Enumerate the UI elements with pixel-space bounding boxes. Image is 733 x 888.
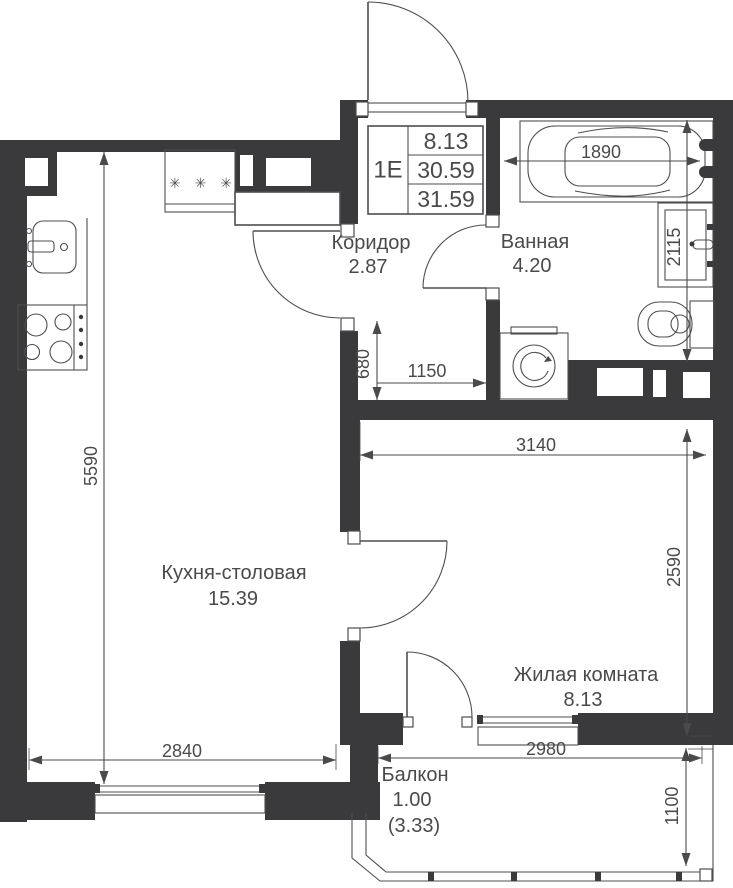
wall-hall-living-divider — [340, 400, 568, 420]
kitchen-door-swing-arc — [253, 231, 340, 318]
balcony-door — [407, 652, 472, 717]
toilet-cistern — [690, 301, 714, 348]
door-jamb — [348, 628, 360, 641]
flat-total-area: 31.59 — [417, 186, 475, 212]
kitchen-sink-icon — [27, 221, 77, 273]
wall-kitchen-living-lower — [340, 641, 360, 713]
wall-top-right — [466, 100, 733, 118]
svg-text:1100: 1100 — [662, 787, 682, 826]
railing-mullion — [428, 872, 434, 881]
living-room-door — [360, 541, 447, 628]
bathroom-area: 4.20 — [513, 255, 552, 277]
bathroom-door — [423, 225, 486, 288]
bath-tap — [699, 166, 719, 178]
kitchen-name: Кухня-столовая — [161, 562, 306, 584]
flat-area: 30.59 — [417, 157, 475, 183]
fridge-icon: ✳ ✳ ✳ — [165, 150, 237, 212]
living-door-swing-arc — [360, 541, 447, 628]
window-end-block — [259, 784, 265, 793]
door-jamb — [486, 288, 499, 300]
wall-shaft-cutout — [266, 158, 311, 186]
dim-niche-width: 1150 — [377, 361, 486, 388]
wall-shaft-cutout — [683, 372, 710, 398]
balcony-name: Балкон — [381, 764, 448, 786]
svg-text:1150: 1150 — [408, 361, 447, 381]
dim-kitchen-depth: 5590 — [81, 152, 109, 784]
balcony-door-swing-arc — [407, 652, 472, 717]
washing-machine-icon — [500, 327, 568, 399]
svg-text:2980: 2980 — [526, 739, 566, 759]
window-end-block — [572, 715, 578, 724]
svg-text:2115: 2115 — [664, 228, 684, 267]
window-end-block — [94, 784, 100, 793]
bath-tap — [699, 139, 719, 151]
basin-tap — [707, 261, 716, 267]
door-jamb — [403, 717, 413, 727]
room-labels: Коридор 2.87 Ванная 4.20 Кухня-столовая … — [161, 231, 659, 837]
door-jamb — [341, 318, 354, 331]
wall-living-bottom-left — [340, 713, 403, 745]
floor-plan-drawing: ✳ ✳ ✳ — [0, 0, 733, 888]
walls — [0, 100, 733, 822]
dim-balcony-depth: 1100 — [662, 748, 713, 866]
toilet-icon — [638, 301, 714, 348]
kitchen-area: 15.39 — [208, 588, 258, 610]
railing-end-post — [700, 869, 712, 881]
bathroom-name: Ванная — [501, 231, 570, 253]
svg-text:680: 680 — [353, 349, 373, 379]
wall-shaft-cutout — [240, 155, 253, 186]
balcony-area: 1.00 — [393, 789, 432, 811]
wall-left — [0, 140, 27, 822]
wall-bath-west-upper — [486, 100, 500, 215]
basin-tap — [707, 224, 716, 230]
svg-text:2590: 2590 — [664, 547, 684, 587]
kitchen-window-opening — [95, 782, 265, 813]
flat-living-area: 8.13 — [424, 128, 469, 154]
railing-mullion — [595, 872, 601, 881]
svg-text:3140: 3140 — [516, 435, 556, 455]
svg-text:5590: 5590 — [81, 446, 101, 486]
bathroom-door-swing-arc — [423, 225, 486, 288]
title-block: 1Е 8.13 30.59 31.59 — [368, 126, 483, 214]
dim-kitchen-width: 2840 — [29, 741, 336, 770]
entry-door-swing-arc — [368, 2, 468, 102]
stove-icon — [18, 305, 87, 370]
door-jamb — [486, 215, 499, 227]
dim-living-depth: 2590 — [664, 429, 713, 736]
door-jamb — [356, 102, 368, 116]
wall-kitchen-bottom-left — [0, 782, 95, 820]
wall-right — [713, 100, 733, 745]
toilet-bowl — [638, 302, 692, 346]
window-end-block — [477, 715, 483, 724]
door-jamb — [462, 717, 472, 727]
balcony-area-coeff: (3.33) — [388, 815, 440, 837]
corridor-name: Коридор — [332, 232, 411, 254]
living-name: Жилая комната — [514, 664, 659, 686]
door-jamb — [348, 531, 360, 544]
wall-corridor-west-upper — [340, 100, 358, 224]
fridge-symbol: ✳ ✳ ✳ — [169, 175, 237, 191]
wall-shaft-cutout — [25, 158, 48, 186]
kitchen-door — [253, 231, 340, 318]
dim-bathtub-length: 1890 — [504, 142, 700, 166]
railing-mullion — [511, 872, 517, 881]
svg-text:2840: 2840 — [162, 741, 202, 761]
corridor-area: 2.87 — [349, 256, 388, 278]
entry-door — [368, 2, 468, 102]
partition-band — [235, 192, 340, 225]
wall-living-bottom-right — [578, 713, 733, 745]
svg-text:1890: 1890 — [581, 142, 621, 162]
dim-living-width: 3140 — [360, 422, 706, 461]
wall-kitchen-bottom-right — [265, 782, 380, 820]
railing-mullion — [676, 872, 682, 881]
flat-type-label: 1Е — [373, 157, 402, 184]
wall-shaft-cutout — [597, 368, 643, 396]
living-area: 8.13 — [564, 689, 603, 711]
door-jamb — [466, 102, 478, 116]
wall-kitchen-living-upper — [340, 420, 360, 532]
wall-shaft-cutout — [653, 370, 666, 397]
floor-plan: ✳ ✳ ✳ — [0, 0, 733, 888]
